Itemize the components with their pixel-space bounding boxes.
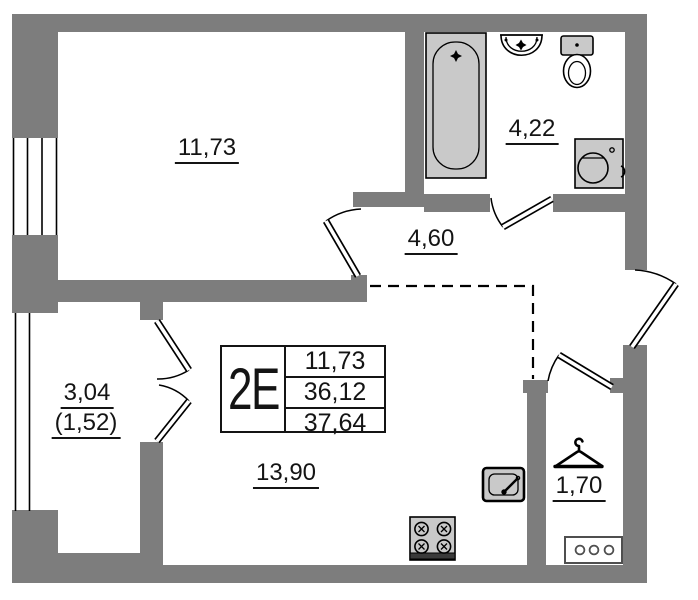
area-value-row: 11,73 bbox=[286, 347, 384, 378]
area-label-hallway: 4,60 bbox=[405, 227, 458, 255]
stove-front-strip bbox=[410, 553, 455, 559]
cabinet-icon bbox=[565, 537, 622, 563]
toilet-bowl bbox=[564, 55, 591, 88]
wall-bathroom-left bbox=[405, 30, 424, 207]
wall-closet-left bbox=[527, 388, 546, 565]
wall-left-upper bbox=[12, 32, 58, 138]
wall-corridor-top-b bbox=[424, 194, 490, 212]
bathtub-icon bbox=[426, 33, 486, 178]
area-label-kitchen-living: 13,90 bbox=[253, 461, 319, 489]
window-opening bbox=[12, 138, 58, 235]
balcony-glazing bbox=[16, 313, 30, 511]
door-leaf-inner bbox=[157, 321, 189, 370]
area-label-wardrobe: 1,70 bbox=[553, 474, 606, 502]
door-closet bbox=[548, 355, 612, 387]
area-label-balcony: 3,04 bbox=[61, 381, 114, 409]
zone-boundary-dashed-line bbox=[370, 286, 533, 379]
door-swing-arc bbox=[159, 385, 189, 401]
door-swing-arc bbox=[157, 370, 189, 379]
area-label-bathroom: 4,22 bbox=[506, 117, 559, 145]
door-leaf-inner bbox=[157, 401, 189, 441]
cabinet-knob bbox=[605, 546, 614, 555]
door-leaf-inner bbox=[326, 221, 358, 276]
wall-room-bottom bbox=[12, 280, 367, 302]
door-swing-arc bbox=[635, 270, 676, 284]
wall-right-upper bbox=[625, 14, 647, 270]
door-swing-arc bbox=[326, 209, 361, 221]
area-value-row: 36,12 bbox=[286, 378, 384, 409]
door-leaf-inner bbox=[632, 284, 676, 347]
wall-bottom bbox=[140, 565, 647, 583]
door-room bbox=[326, 209, 361, 276]
area-value-row: 37,64 bbox=[286, 409, 384, 438]
apartment-info-box: 2E 11,73 36,12 37,64 bbox=[220, 345, 386, 433]
wall-corridor-top-a bbox=[353, 192, 424, 207]
hanger-hook bbox=[575, 439, 582, 450]
washing-machine-icon bbox=[575, 139, 625, 188]
sink-faucet-base bbox=[501, 489, 506, 494]
wall-top bbox=[12, 14, 647, 32]
area-label-balcony-reduced: (1,52) bbox=[52, 411, 121, 439]
unit-type-cell: 2E bbox=[222, 347, 286, 431]
door-leaf-inner bbox=[559, 355, 612, 387]
washer-body bbox=[575, 139, 623, 188]
clothes-hanger-icon bbox=[555, 439, 602, 467]
cabinet-knob bbox=[576, 546, 585, 555]
toilet-icon bbox=[561, 36, 593, 88]
wall-corridor-top-c bbox=[553, 194, 625, 212]
window-left bbox=[12, 138, 58, 235]
door-bathroom bbox=[491, 198, 552, 227]
area-values: 11,73 36,12 37,64 bbox=[286, 347, 384, 431]
wall-balcony-stub-top bbox=[140, 302, 163, 320]
door-swing-arc bbox=[548, 355, 559, 381]
toilet-button bbox=[575, 43, 579, 47]
wall-balcony-lower bbox=[140, 442, 163, 569]
stove-icon bbox=[410, 517, 455, 560]
wall-room-bottom-end bbox=[351, 275, 367, 296]
door-leaf-inner bbox=[503, 199, 552, 227]
basin-dot bbox=[536, 39, 539, 42]
basin-dot bbox=[505, 39, 508, 42]
hanger-shoulders bbox=[556, 451, 602, 466]
wash-basin-icon bbox=[500, 35, 543, 55]
cabinet-knob bbox=[590, 546, 599, 555]
floor-plan-drawing bbox=[0, 0, 698, 600]
unit-type-label: 2E bbox=[228, 356, 279, 423]
area-label-room: 11,73 bbox=[175, 136, 239, 164]
floor-plan: 11,73 4,22 4,60 3,04 (1,52) 13,90 1,70 2… bbox=[0, 0, 698, 600]
door-entrance bbox=[632, 270, 676, 347]
door-swing-arc bbox=[491, 198, 503, 227]
door-balcony-double bbox=[157, 321, 189, 441]
kitchen-sink-icon bbox=[483, 468, 524, 501]
